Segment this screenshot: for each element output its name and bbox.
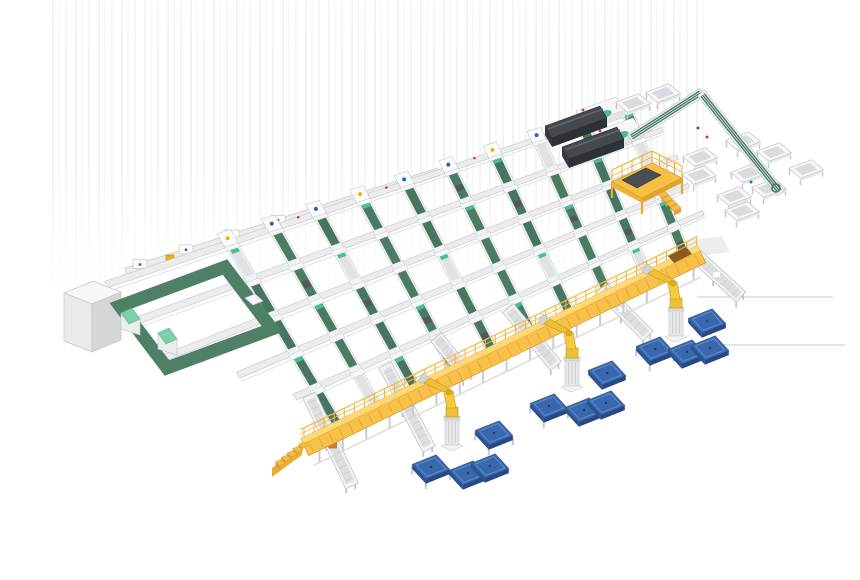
- robot-base: [446, 407, 458, 417]
- pallet-dot: [548, 405, 550, 407]
- pallet-dot: [430, 466, 432, 468]
- indicator-dot: [385, 186, 388, 189]
- indicator-dot: [358, 192, 362, 196]
- robot-joint: [670, 280, 676, 286]
- factory-illustration: [0, 0, 860, 580]
- indicator-dot: [750, 181, 753, 184]
- pallet-dot: [706, 320, 708, 322]
- pallet-dot: [654, 348, 656, 350]
- conveyor-item: [618, 307, 626, 313]
- render-canvas: [0, 0, 860, 580]
- indicator-dot: [139, 263, 142, 266]
- indicator-dot: [582, 109, 585, 112]
- pallet-dot: [467, 472, 469, 474]
- pallet-dot: [583, 409, 585, 411]
- indicator-dot: [697, 127, 700, 130]
- pallet-dot: [489, 465, 491, 467]
- robot-joint: [566, 330, 572, 336]
- indicator-dot: [185, 248, 188, 251]
- indicator-dot: [446, 163, 450, 167]
- pallet-dot: [493, 432, 495, 434]
- robot-base: [670, 298, 682, 308]
- indicator-dot: [226, 236, 230, 240]
- robot-base: [566, 348, 578, 358]
- indicator-dot: [490, 148, 494, 152]
- indicator-dot: [706, 136, 709, 139]
- indicator-dot: [535, 133, 539, 137]
- indicator-dot: [297, 216, 300, 219]
- indicator-dot: [314, 207, 318, 211]
- pallet-dot: [605, 402, 607, 404]
- pallet-dot: [709, 347, 711, 349]
- indicator-dot: [599, 130, 602, 133]
- indicator-dot: [270, 222, 274, 226]
- indicator-dot: [473, 157, 476, 160]
- pallet-dot: [606, 372, 608, 374]
- conveyor-item: [713, 272, 721, 278]
- pallet-dot: [686, 351, 688, 353]
- robot-joint: [446, 389, 452, 395]
- indicator-dot: [402, 177, 406, 181]
